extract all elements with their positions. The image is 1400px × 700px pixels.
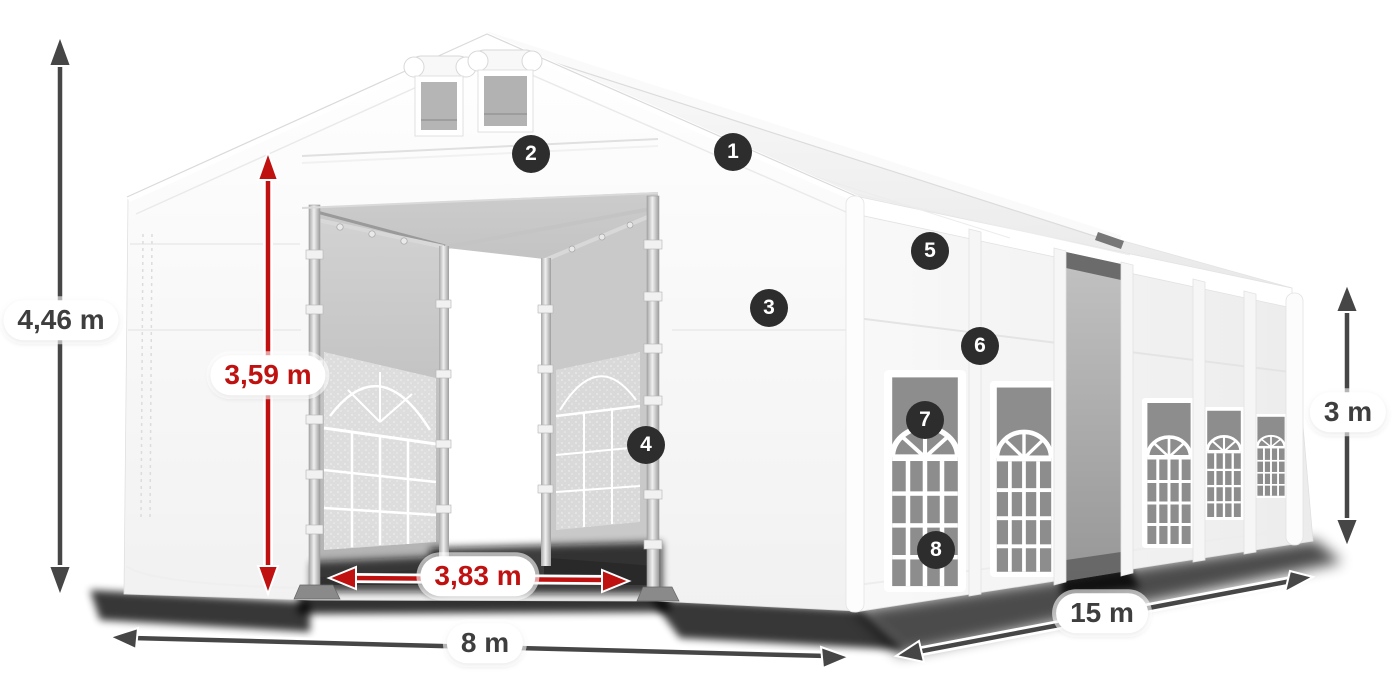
mesh-window xyxy=(324,352,436,550)
dim-label-wall-height: 3 m xyxy=(1310,392,1386,432)
side-window xyxy=(1254,414,1288,498)
marker-8: 8 xyxy=(917,531,955,569)
side-door-opening xyxy=(1066,252,1121,581)
marker-6: 6 xyxy=(961,327,999,365)
marker-3: 3 xyxy=(750,289,788,327)
marker-5: 5 xyxy=(911,232,949,270)
tent-dimensions-diagram: 4,46 m 3,59 m 3,83 m 8 m 15 m 3 m 1 2 3 … xyxy=(0,0,1400,700)
marker-4: 4 xyxy=(627,426,665,464)
entrance-opening xyxy=(294,192,679,601)
side-window xyxy=(1203,407,1245,520)
dim-label-entrance-width: 3,83 m xyxy=(420,556,535,596)
side-window xyxy=(990,381,1058,577)
back-corner-post xyxy=(1286,293,1303,545)
marker-1: 1 xyxy=(714,133,752,171)
pole-foot-plate xyxy=(294,585,340,599)
dim-label-front-width: 8 m xyxy=(447,623,523,663)
dim-label-side-length: 15 m xyxy=(1056,593,1148,633)
entrance-right-door-panel xyxy=(545,216,650,566)
marker-7: 7 xyxy=(906,401,944,439)
side-window xyxy=(1142,398,1196,548)
entrance-left-door-panel xyxy=(313,219,444,578)
dim-label-total-height: 4,46 m xyxy=(3,300,118,340)
marker-2: 2 xyxy=(512,135,550,173)
tent-illustration xyxy=(0,0,1400,700)
dim-label-entrance-height: 3,59 m xyxy=(210,355,325,395)
front-corner-post xyxy=(846,196,864,612)
pole-foot-plate xyxy=(637,587,679,601)
